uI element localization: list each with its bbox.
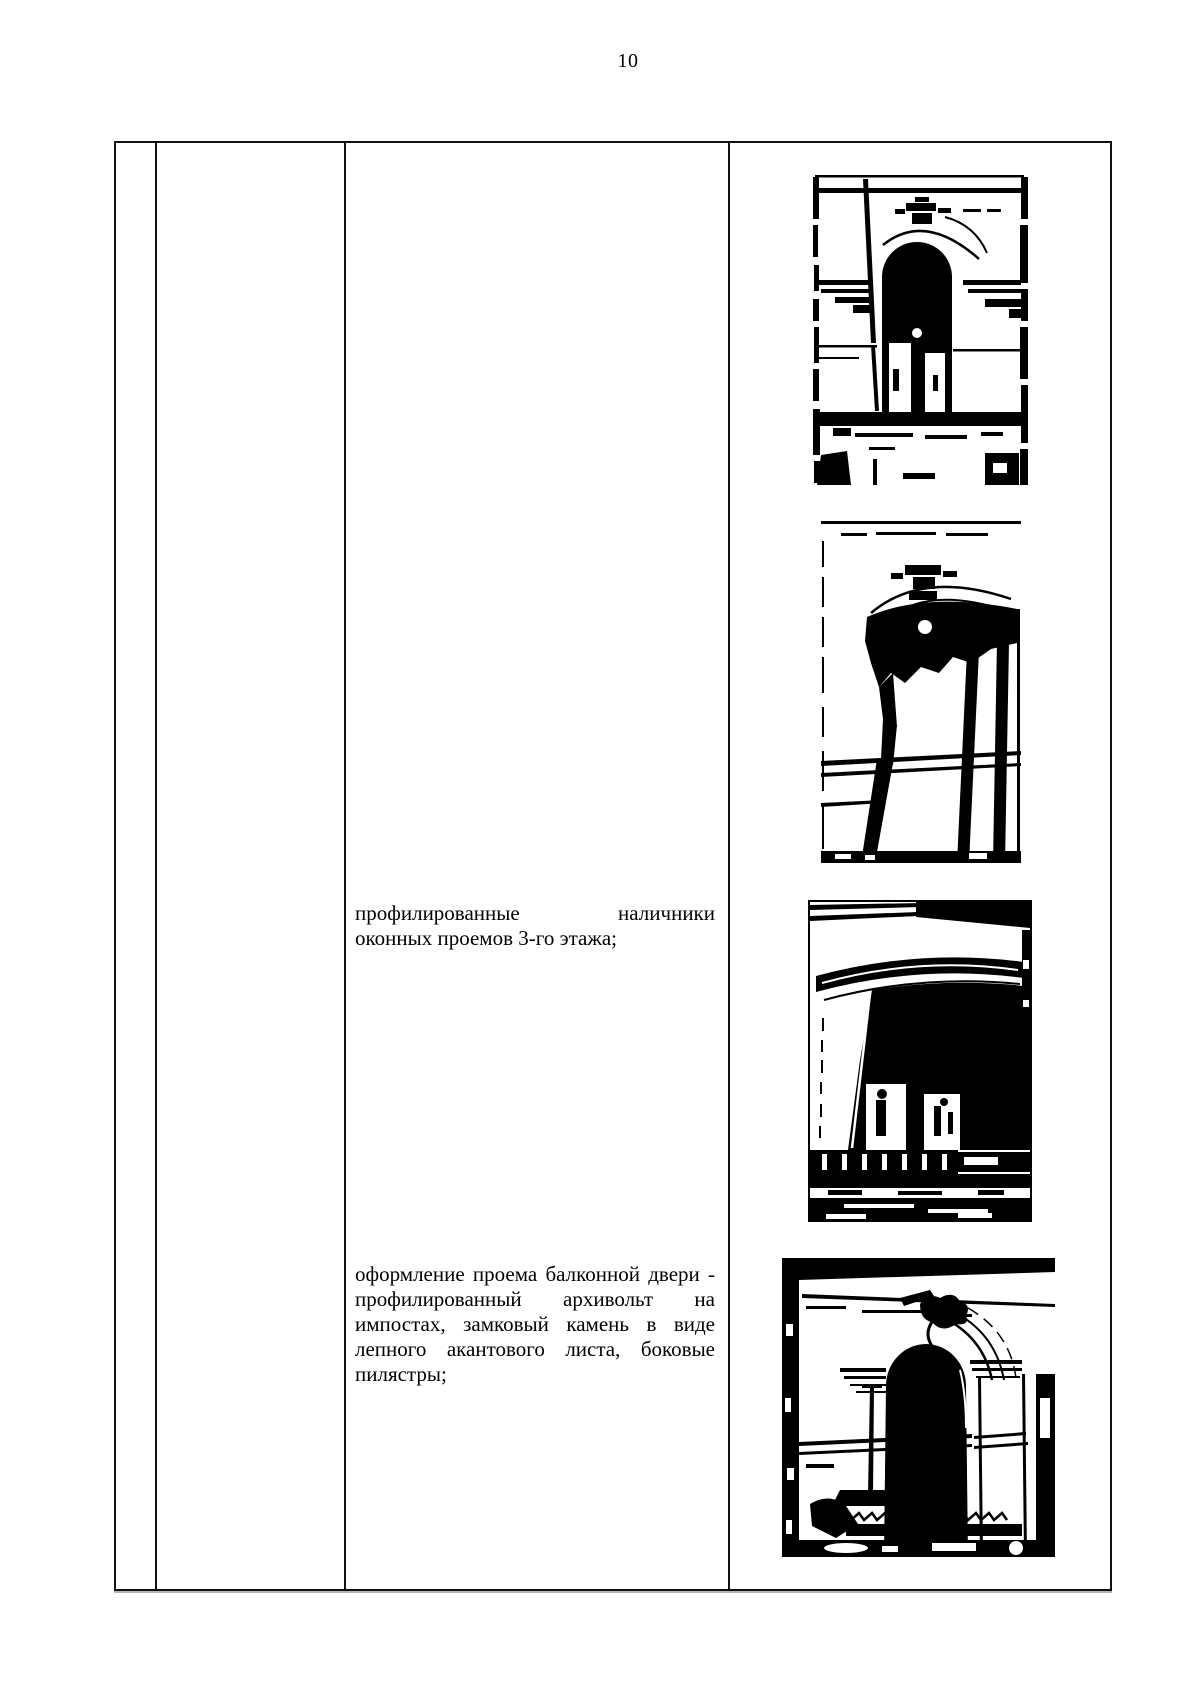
page-number: 10 (568, 50, 688, 73)
balcony-door-archivolt-photo (782, 1258, 1055, 1557)
document-table: профилированные наличники оконных проемо… (114, 141, 1112, 1591)
arched-window-niche-image (813, 173, 1028, 485)
text-line: лепного акантового листа, боковые (355, 1337, 715, 1362)
text-line: пилястры; (355, 1362, 715, 1387)
text-line: профилированные наличники (355, 901, 715, 926)
text-line: оформление проема балконной двери - (355, 1262, 715, 1287)
text-line: оконных проемов 3-го этажа; (355, 926, 715, 951)
table-cell-illustration-column (730, 143, 1114, 1589)
text-line: импостах, замковый камень в виде (355, 1312, 715, 1337)
window-casings-paragraph: профилированные наличники оконных проемо… (355, 901, 715, 951)
balcony-door-paragraph: оформление проема балконной двери - проф… (355, 1262, 715, 1387)
table-cell-index-column (116, 143, 157, 1589)
profiled-window-surround-photo (808, 900, 1032, 1222)
segmental-arch-window-image (821, 521, 1021, 863)
document-page: 10 профилированные наличники оконных про… (0, 0, 1200, 1697)
arched-window-niche-photo (813, 173, 1028, 485)
table-cell-description-column: профилированные наличники оконных проемо… (346, 143, 730, 1589)
profiled-window-surround-image (808, 900, 1032, 1222)
balcony-door-archivolt-image (782, 1258, 1055, 1557)
text-line: профилированный архивольт на (355, 1287, 715, 1312)
table-cell-number-column (157, 143, 346, 1589)
segmental-arch-window-photo (821, 521, 1021, 863)
